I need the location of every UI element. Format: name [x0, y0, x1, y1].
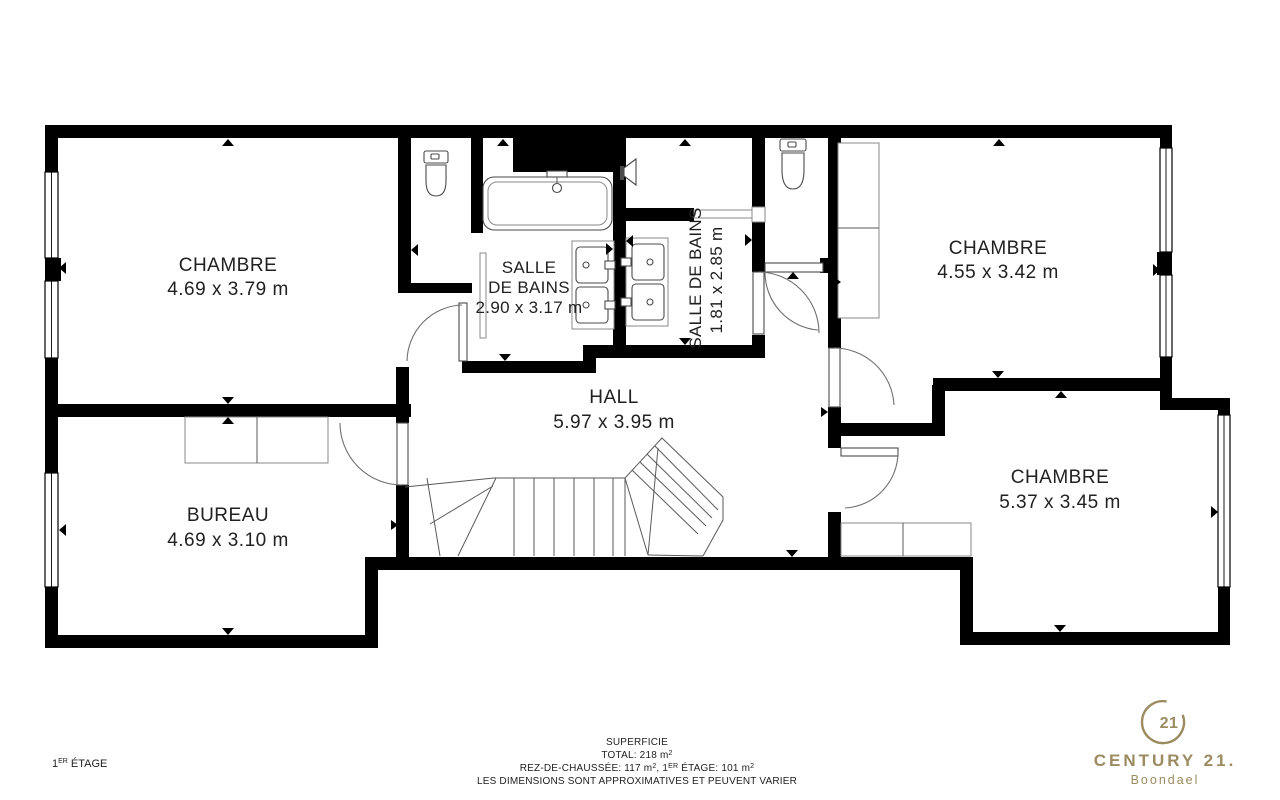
double-sink-icon [621, 238, 668, 326]
bathtub-icon [483, 171, 612, 230]
room-label-chambre-bottom-right: CHAMBRE [1011, 467, 1110, 488]
room-label-bureau: BUREAU [187, 505, 269, 526]
window [45, 172, 58, 258]
room-dims-chambre-bottom-right: 5.37 x 3.45 m [999, 492, 1121, 513]
room-dims-chambre-top-right: 4.55 x 3.42 m [937, 262, 1059, 283]
window [1218, 415, 1230, 587]
closet [185, 417, 328, 463]
room-dims-hall: 5.97 x 3.95 m [553, 412, 675, 433]
room-label-hall: HALL [589, 387, 639, 408]
plan-background [0, 0, 1280, 800]
room-label-sdb2: SALLE DE BAINS [686, 207, 705, 348]
glass-partition [480, 253, 486, 338]
closet [841, 523, 971, 556]
window [1160, 275, 1172, 357]
century21-seal-number: 21 [1160, 715, 1179, 732]
room-label-chambre-top-right: CHAMBRE [949, 238, 1048, 259]
wall-pass-through [752, 207, 765, 222]
surface-total: TOTAL: 218 m2 [601, 750, 672, 761]
room-dims-chambre-top-left: 4.69 x 3.79 m [167, 279, 289, 300]
room-dims-sdb2: 1.81 x 2.85 m [707, 227, 726, 334]
century21-wordmark: CENTURY 21. [1094, 751, 1237, 770]
room-label-sdb1-line2: DE BAINS [488, 278, 570, 297]
chimney-shaft [513, 125, 617, 172]
floor-plan: CHAMBRE 4.69 x 3.79 m SALLE DE BAINS 2.9… [0, 0, 1280, 800]
century21-agency: Boondael [1131, 773, 1200, 787]
surface-disclaimer: LES DIMENSIONS SONT APPROXIMATIVES ET PE… [477, 776, 797, 787]
toilet-icon [780, 139, 806, 189]
window [45, 281, 58, 358]
window [1160, 148, 1172, 252]
room-dims-bureau: 4.69 x 3.10 m [167, 530, 289, 551]
room-label-chambre-top-left: CHAMBRE [179, 255, 278, 276]
room-dims-sdb1: 2.90 x 3.17 m [476, 298, 583, 317]
closet [838, 143, 879, 318]
toilet-icon [424, 151, 448, 196]
surface-title: SUPERFICIE [606, 737, 668, 748]
window [45, 473, 58, 587]
surface-by-floor: REZ-DE-CHAUSSÉE: 117 m2, 1ER ÉTAGE: 101 … [520, 761, 755, 774]
room-label-sdb1-line1: SALLE [502, 258, 556, 277]
